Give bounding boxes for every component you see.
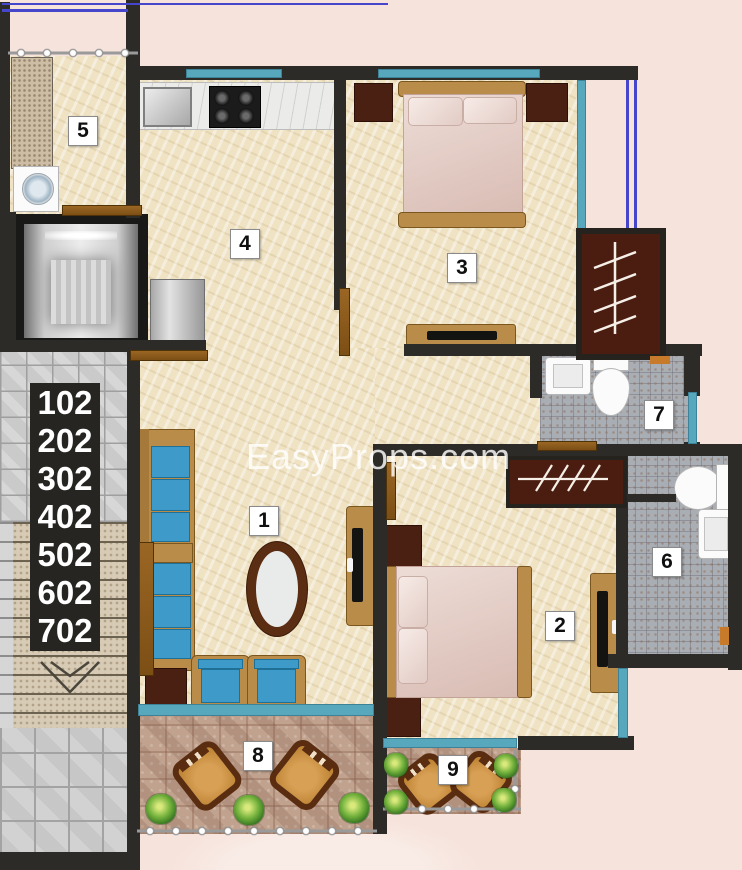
burner-icon (214, 90, 230, 106)
wall-bedroom2-left (373, 444, 387, 834)
wall-bathroom6-bottom (608, 654, 742, 668)
elevator-ceiling-light (45, 231, 118, 240)
sink-basin (553, 364, 583, 388)
projection-line-top-2 (2, 9, 128, 12)
hall-threshold (130, 350, 208, 361)
bathroom7-door (537, 441, 597, 451)
plant (339, 793, 369, 823)
armchair-seat (257, 669, 296, 703)
nightstand (526, 83, 568, 122)
coffee-table (247, 542, 307, 636)
bedroom3-door (339, 288, 350, 356)
balcony8-railing (137, 826, 377, 836)
bed2-pillow (398, 576, 428, 628)
unit-number: 102 (37, 384, 92, 422)
window-bedroom3-top (378, 69, 540, 78)
wardrobe-bedroom3 (576, 228, 666, 360)
window-bedroom2-balcony (383, 738, 517, 748)
living-tv-screen (352, 528, 363, 602)
projection-line-top-1 (2, 3, 388, 5)
unit-number: 602 (37, 574, 92, 612)
living-tv-notch (347, 558, 353, 572)
watermark-text: EasyProps.com (246, 436, 511, 478)
sink-basin (704, 517, 728, 551)
staircase-side-rail (0, 522, 13, 728)
wall-bathroom7-left (530, 344, 542, 398)
wall-left-outer (0, 2, 10, 212)
elevator-back-wall (51, 260, 110, 324)
room-label-master-bathroom: 6 (652, 547, 682, 577)
unit-number: 402 (37, 498, 92, 536)
unit-number: 202 (37, 422, 92, 460)
kitchen-sink (143, 87, 192, 127)
room-label-utility: 5 (68, 116, 98, 146)
stairs-down-arrow-icon (38, 650, 102, 706)
armchair-back (254, 659, 299, 669)
wall-bathroom7-right-top (684, 344, 700, 396)
bed3-pillow (408, 97, 463, 126)
wall-bathroom6-top (616, 444, 742, 456)
wall-elevator-left (0, 212, 16, 352)
room-label-common-bathroom: 7 (644, 400, 674, 430)
window-utility-top (186, 69, 282, 78)
room-label-bedroom-balcony: 9 (438, 755, 468, 785)
sofa-cushion (151, 479, 190, 511)
bed3-pillow (463, 97, 517, 124)
dimension-mark (720, 627, 729, 645)
wardrobe-hatch-icon (582, 234, 648, 342)
utility-railing (8, 48, 138, 59)
entry-door (139, 542, 154, 676)
sofa-cushion (149, 629, 191, 659)
nightstand (383, 693, 421, 737)
wall-bedroom2-bottom (518, 736, 634, 750)
wall-hall-bedroom3 (334, 78, 346, 310)
bed2-pillow (398, 628, 428, 684)
room-label-bedroom: 3 (447, 253, 477, 283)
sofa-cushion (151, 512, 190, 542)
plant (492, 788, 516, 812)
sofa-cushion (151, 446, 190, 478)
bed3-footboard (398, 212, 526, 228)
plant (146, 794, 176, 824)
floor-stack-signboard: 102 202 302 402 502 602 702 (30, 383, 100, 651)
window-bathroom6 (618, 668, 628, 738)
room-label-kitchen-hall: 4 (230, 229, 260, 259)
floor-plan: 102 202 302 402 502 602 702 1 2 3 4 5 6 … (0, 0, 742, 870)
wall-bathroom6-partition (620, 494, 676, 502)
sofa-cushion (149, 596, 191, 628)
armchair (247, 655, 306, 709)
burner-icon (238, 90, 254, 106)
nightstand (383, 525, 422, 570)
utility-door (62, 205, 142, 216)
room-label-master-bedroom: 2 (545, 611, 575, 641)
washing-machine (13, 166, 59, 212)
bathroom6-toilet-bowl (674, 466, 722, 510)
window-bedroom3-right (577, 80, 586, 230)
wall-bottom-outer (0, 852, 140, 870)
plant (494, 754, 518, 778)
elevator-cab (24, 224, 138, 338)
bedroom2-tv-screen (597, 591, 608, 667)
elevator (14, 214, 148, 348)
unit-number: 502 (37, 536, 92, 574)
sofa-cushion (149, 563, 191, 595)
dimension-mark (650, 356, 670, 364)
room-label-living-balcony: 8 (243, 741, 273, 771)
projection-line-right-1 (626, 80, 629, 232)
washing-machine-drum (22, 173, 54, 205)
bedroom3-tv-screen (427, 331, 497, 340)
armchair-back (198, 659, 243, 669)
plant (384, 790, 408, 814)
burner-icon (238, 108, 254, 124)
projection-line-right-2 (634, 80, 637, 232)
duct-shaft (11, 57, 53, 169)
burner-icon (214, 108, 230, 124)
lower-lobby-floor (0, 728, 130, 856)
bathroom7-sink (545, 357, 591, 395)
window-living-balcony (138, 704, 374, 716)
unit-number: 302 (37, 460, 92, 498)
refrigerator (150, 279, 205, 345)
kitchen-hob (209, 86, 261, 128)
armchair-seat (201, 669, 240, 703)
armchair (191, 655, 250, 709)
unit-number: 702 (37, 612, 92, 650)
plant (234, 795, 264, 825)
wall-bathroom7-right-bottom (684, 442, 700, 456)
bed2-footboard (517, 566, 532, 698)
wall-utility-right (126, 0, 140, 218)
sofa-armrest (149, 543, 193, 563)
wall-bathroom6-right (728, 444, 742, 670)
nightstand (354, 83, 393, 122)
window-bathroom7 (688, 392, 697, 444)
wardrobe-bedroom2 (506, 456, 627, 508)
wardrobe-hatch-icon (510, 460, 615, 496)
plant (384, 753, 408, 777)
room-label-living: 1 (249, 506, 279, 536)
